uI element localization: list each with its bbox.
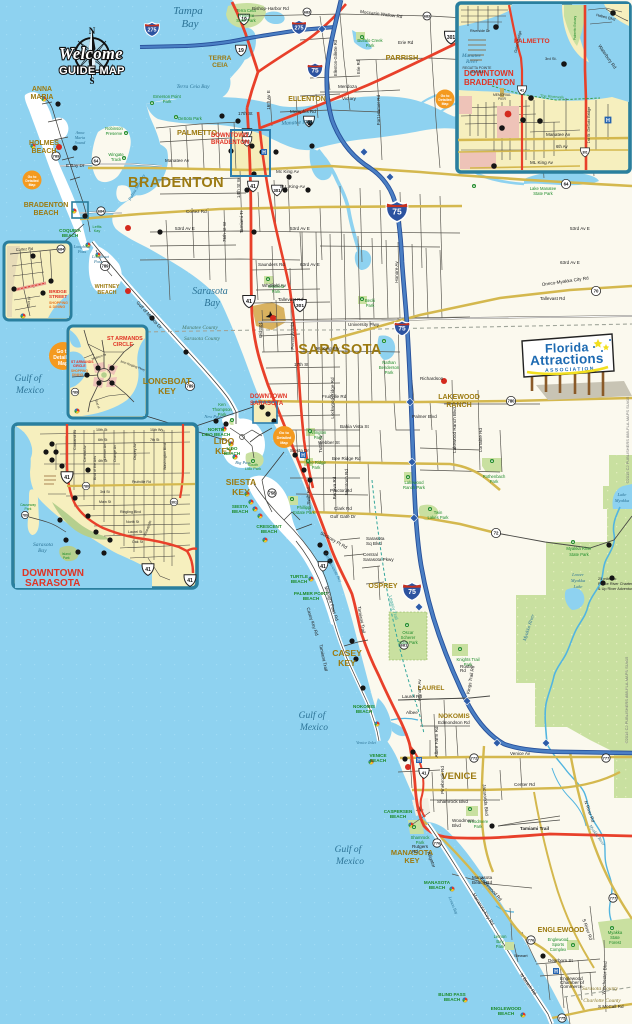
svg-text:M.L.King-Av: M.L.King-Av bbox=[280, 184, 306, 189]
svg-text:GUIDE-MAP: GUIDE-MAP bbox=[59, 65, 125, 77]
svg-text:Park: Park bbox=[496, 944, 506, 949]
svg-text:301: 301 bbox=[582, 151, 588, 155]
svg-text:75: 75 bbox=[408, 589, 416, 596]
svg-text:Osprey Av: Osprey Av bbox=[133, 443, 137, 460]
svg-text:Blvd: Blvd bbox=[452, 823, 461, 828]
svg-text:3rd St.: 3rd St. bbox=[545, 56, 557, 61]
svg-text:Manatee Av: Manatee Av bbox=[546, 132, 571, 137]
svg-text:Map: Map bbox=[280, 441, 288, 445]
svg-text:7th St: 7th St bbox=[150, 438, 159, 442]
svg-text:SARASOTA: SARASOTA bbox=[250, 401, 284, 407]
svg-text:& DINING: & DINING bbox=[49, 305, 65, 309]
svg-text:Siesta Dr: Siesta Dr bbox=[290, 448, 309, 453]
svg-text:Sq Blvd: Sq Blvd bbox=[366, 541, 382, 546]
svg-text:Erie Rd: Erie Rd bbox=[398, 40, 414, 45]
svg-text:789: 789 bbox=[72, 390, 78, 394]
svg-text:©2015 CJ PUBLISHERS 888-FLA-: ©2015 CJ PUBLISHERS 888-FLA-MAPS SU#15 bbox=[624, 656, 629, 744]
svg-text:301: 301 bbox=[171, 500, 177, 504]
svg-text:ENGLEWOOD: ENGLEWOOD bbox=[538, 927, 585, 934]
svg-text:KEY: KEY bbox=[158, 386, 176, 396]
svg-text:Go to: Go to bbox=[279, 431, 290, 435]
svg-text:Mendoza: Mendoza bbox=[338, 84, 357, 89]
svg-text:Complex: Complex bbox=[550, 947, 567, 952]
svg-text:State Park: State Park bbox=[236, 18, 256, 23]
svg-text:Shamrock Blvd: Shamrock Blvd bbox=[437, 799, 468, 804]
svg-text:BEACH: BEACH bbox=[390, 814, 407, 819]
svg-text:Tamiami Tr: Tamiami Tr bbox=[239, 210, 244, 233]
svg-text:Pass: Pass bbox=[77, 249, 87, 254]
svg-text:Ringling Blvd: Ringling Blvd bbox=[120, 510, 141, 514]
svg-text:275: 275 bbox=[295, 25, 304, 31]
svg-text:19: 19 bbox=[238, 48, 244, 54]
svg-text:10th St: 10th St bbox=[96, 428, 107, 432]
svg-text:Lorraine Rd: Lorraine Rd bbox=[478, 428, 483, 452]
svg-text:Park: Park bbox=[163, 99, 173, 104]
svg-text:63rd Av E: 63rd Av E bbox=[300, 262, 320, 267]
svg-text:H: H bbox=[554, 969, 558, 975]
svg-text:SIESTA: SIESTA bbox=[226, 477, 256, 487]
svg-text:University Plwy: University Plwy bbox=[348, 322, 380, 327]
svg-text:Albee: Albee bbox=[406, 710, 418, 715]
svg-text:ELLENTON: ELLENTON bbox=[288, 96, 326, 103]
svg-text:Rd: Rd bbox=[412, 849, 418, 854]
svg-text:LIDO: LIDO bbox=[214, 436, 235, 446]
svg-text:Cocoanut Av: Cocoanut Av bbox=[73, 429, 77, 450]
svg-text:10th Wy: 10th Wy bbox=[150, 428, 163, 432]
svg-text:Washington Blvd: Washington Blvd bbox=[163, 443, 167, 470]
svg-text:BEACH: BEACH bbox=[34, 210, 59, 217]
svg-text:SARASOTA: SARASOTA bbox=[25, 578, 80, 589]
svg-text:Swift Rd: Swift Rd bbox=[306, 487, 311, 505]
svg-text:E Bay Dr: E Bay Dr bbox=[66, 163, 85, 168]
svg-text:Detailed: Detailed bbox=[277, 436, 292, 440]
svg-text:Mc King Av: Mc King Av bbox=[276, 169, 300, 174]
svg-text:Manatee County: Manatee County bbox=[181, 325, 218, 331]
svg-text:NOKOMIS: NOKOMIS bbox=[438, 713, 470, 720]
svg-text:Venice Inlet: Venice Inlet bbox=[356, 740, 376, 745]
svg-text:Myakka: Myakka bbox=[570, 578, 586, 583]
svg-text:DINING: DINING bbox=[72, 373, 84, 377]
svg-text:70: 70 bbox=[594, 289, 599, 294]
svg-text:41: 41 bbox=[520, 89, 524, 93]
svg-text:780: 780 bbox=[83, 484, 89, 488]
svg-text:LONGBOAT: LONGBOAT bbox=[143, 376, 192, 386]
svg-text:State Park: State Park bbox=[398, 640, 418, 645]
svg-text:HOLMES: HOLMES bbox=[29, 140, 59, 147]
svg-text:Orange Av: Orange Av bbox=[113, 445, 117, 462]
svg-text:Lakes Park: Lakes Park bbox=[428, 515, 450, 520]
svg-text:Tamiami Trail: Tamiami Trail bbox=[520, 826, 549, 831]
svg-text:Sarasota County: Sarasota County bbox=[184, 336, 221, 342]
svg-text:LIDO BEACH: LIDO BEACH bbox=[202, 432, 231, 437]
svg-text:TERRA: TERRA bbox=[209, 55, 232, 62]
svg-text:LAKEWOOD: LAKEWOOD bbox=[438, 394, 480, 401]
svg-text:BEACH: BEACH bbox=[232, 509, 249, 514]
svg-text:Palmetto Estuary: Palmetto Estuary bbox=[573, 15, 577, 40]
svg-text:DOWNTOWN: DOWNTOWN bbox=[250, 394, 287, 400]
svg-text:Sound: Sound bbox=[75, 140, 86, 145]
svg-text:Park: Park bbox=[474, 824, 484, 829]
svg-text:BRADENTON: BRADENTON bbox=[211, 140, 249, 146]
svg-text:758: 758 bbox=[269, 491, 277, 496]
svg-text:ML King Av: ML King Av bbox=[530, 160, 554, 165]
svg-text:River: River bbox=[465, 59, 479, 65]
svg-text:Manatee Av: Manatee Av bbox=[165, 158, 190, 163]
svg-text:Map: Map bbox=[442, 102, 449, 106]
svg-text:BEACH: BEACH bbox=[356, 709, 373, 714]
svg-text:775: 775 bbox=[559, 1016, 566, 1021]
svg-text:Forest: Forest bbox=[609, 940, 622, 945]
svg-text:14th St W: 14th St W bbox=[236, 177, 241, 198]
svg-text:275: 275 bbox=[148, 27, 157, 33]
svg-text:Mexico: Mexico bbox=[15, 386, 44, 396]
svg-text:Stewart: Stewart bbox=[514, 953, 528, 958]
svg-text:Pass: Pass bbox=[93, 259, 103, 264]
svg-text:41: 41 bbox=[64, 475, 70, 481]
svg-text:Sarasota Pkwy: Sarasota Pkwy bbox=[363, 557, 394, 562]
svg-text:N: N bbox=[89, 26, 96, 36]
svg-text:41: 41 bbox=[187, 578, 193, 584]
svg-text:BEACH: BEACH bbox=[32, 148, 57, 155]
svg-text:Palmer Blvd: Palmer Blvd bbox=[412, 414, 437, 419]
svg-text:M. King Wy: M. King Wy bbox=[316, 346, 340, 351]
svg-text:McIntosh Rd: McIntosh Rd bbox=[344, 469, 349, 495]
svg-text:H: H bbox=[606, 118, 610, 124]
svg-text:©2015 CJ PUBLISHERS 888-FLA-: ©2015 CJ PUBLISHERS 888-FLA-MAPS SU#15 bbox=[625, 396, 630, 484]
svg-text:Myakka River: Myakka River bbox=[566, 546, 592, 551]
svg-text:Estate Park: Estate Park bbox=[293, 510, 316, 515]
svg-text:MARINA: MARINA bbox=[470, 70, 484, 74]
svg-text:Terra Ceia Bay: Terra Ceia Bay bbox=[176, 84, 210, 90]
svg-text:75: 75 bbox=[392, 206, 402, 216]
svg-text:H: H bbox=[417, 758, 421, 764]
svg-text:64: 64 bbox=[94, 159, 99, 164]
svg-text:Bishop-Harbor Rd: Bishop-Harbor Rd bbox=[252, 6, 289, 11]
svg-text:16th Av E: 16th Av E bbox=[266, 90, 271, 110]
svg-text:Park: Park bbox=[490, 479, 500, 484]
svg-text:CIRCLE: CIRCLE bbox=[113, 342, 133, 348]
svg-text:Fort Hamer Rd: Fort Hamer Rd bbox=[376, 94, 381, 125]
svg-text:Main St: Main St bbox=[99, 500, 111, 504]
svg-text:Ellenton-Gillette Rd: Ellenton-Gillette Rd bbox=[333, 39, 338, 76]
svg-text:OSPREY: OSPREY bbox=[368, 583, 398, 590]
svg-text:Victory: Victory bbox=[342, 96, 357, 101]
svg-text:Tallevast Rd: Tallevast Rd bbox=[278, 297, 303, 302]
svg-text:Park: Park bbox=[63, 556, 70, 560]
svg-text:Preserve: Preserve bbox=[106, 131, 123, 136]
svg-text:Pinebrook Rd: Pinebrook Rd bbox=[440, 766, 445, 794]
svg-text:MARIA: MARIA bbox=[31, 94, 54, 101]
svg-text:BEACH: BEACH bbox=[62, 233, 79, 238]
svg-text:CEIA: CEIA bbox=[212, 62, 228, 69]
svg-text:BRADENTON: BRADENTON bbox=[24, 202, 69, 209]
svg-text:17th St: 17th St bbox=[238, 111, 253, 116]
svg-text:Park: Park bbox=[366, 303, 376, 308]
svg-text:KEY: KEY bbox=[338, 658, 356, 668]
svg-text:Bay: Bay bbox=[38, 548, 47, 554]
svg-text:Albee Farm Rd: Albee Farm Rd bbox=[434, 726, 439, 757]
svg-text:Honore Av: Honore Av bbox=[417, 679, 422, 701]
svg-text:Riverside Dr: Riverside Dr bbox=[470, 29, 491, 33]
svg-text:Blvd of the Arts: Blvd of the Arts bbox=[93, 456, 97, 480]
svg-text:53rd Av E: 53rd Av E bbox=[175, 226, 195, 231]
svg-text:H: H bbox=[262, 150, 266, 156]
svg-text:684: 684 bbox=[98, 210, 105, 214]
svg-text:STREET: STREET bbox=[49, 294, 67, 299]
svg-text:41: 41 bbox=[320, 564, 326, 570]
svg-text:Clark Rd: Clark Rd bbox=[334, 506, 352, 511]
svg-text:Welcome: Welcome bbox=[59, 44, 123, 63]
svg-text:41: 41 bbox=[422, 771, 427, 776]
svg-text:State Park: State Park bbox=[569, 552, 589, 557]
svg-text:Tuttle Av: Tuttle Av bbox=[318, 434, 323, 452]
svg-text:Mexico: Mexico bbox=[335, 857, 364, 867]
svg-text:BEACH: BEACH bbox=[291, 579, 308, 584]
svg-text:S McCall Rd: S McCall Rd bbox=[598, 1004, 624, 1009]
svg-text:41: 41 bbox=[145, 567, 151, 573]
svg-text:Gulf of: Gulf of bbox=[299, 710, 327, 721]
svg-text:Lemon Av: Lemon Av bbox=[103, 444, 107, 460]
svg-text:Gulf of: Gulf of bbox=[15, 373, 43, 384]
svg-text:Cortez Rd: Cortez Rd bbox=[186, 209, 207, 214]
svg-text:41: 41 bbox=[246, 299, 252, 305]
svg-text:Ranch Park: Ranch Park bbox=[403, 485, 426, 490]
svg-text:BEACH: BEACH bbox=[261, 529, 278, 534]
svg-text:Map: Map bbox=[29, 183, 36, 187]
svg-text:6th St: 6th St bbox=[98, 438, 107, 442]
svg-text:BEACH: BEACH bbox=[303, 596, 320, 601]
svg-text:Lower: Lower bbox=[571, 572, 584, 577]
svg-text:Beneva Rd: Beneva Rd bbox=[332, 476, 337, 499]
svg-text:Sarasota County: Sarasota County bbox=[582, 986, 619, 992]
svg-text:Erie Rd: Erie Rd bbox=[356, 59, 361, 74]
svg-text:State Park: State Park bbox=[533, 191, 553, 196]
svg-text:BEACH: BEACH bbox=[429, 885, 446, 890]
svg-text:Honore Av: Honore Av bbox=[394, 261, 399, 283]
svg-text:Commerce: Commerce bbox=[560, 984, 583, 989]
svg-text:Peace River Charters: Peace River Charters bbox=[598, 582, 632, 586]
svg-text:75th St W: 75th St W bbox=[222, 221, 227, 242]
svg-text:KEY: KEY bbox=[404, 856, 419, 865]
svg-text:Bee Ridge Rd: Bee Ridge Rd bbox=[332, 456, 361, 461]
svg-text:& Up River Adventures: & Up River Adventures bbox=[598, 587, 632, 591]
svg-text:Park: Park bbox=[312, 465, 322, 470]
svg-text:Sarasota: Sarasota bbox=[192, 286, 228, 297]
svg-text:BRADENTON: BRADENTON bbox=[128, 175, 224, 191]
svg-text:PARRISH: PARRISH bbox=[386, 53, 419, 62]
svg-text:BEACH: BEACH bbox=[444, 997, 461, 1002]
svg-text:Edmondson Rd: Edmondson Rd bbox=[438, 720, 470, 725]
svg-text:64: 64 bbox=[564, 182, 569, 187]
svg-text:Saunders Rd: Saunders Rd bbox=[258, 262, 285, 267]
svg-text:PIER: PIER bbox=[498, 97, 506, 101]
svg-text:Memphis Rd: Memphis Rd bbox=[290, 109, 316, 114]
svg-text:Park: Park bbox=[385, 370, 395, 375]
svg-text:Lake: Lake bbox=[617, 492, 627, 497]
svg-text:780: 780 bbox=[508, 399, 516, 404]
svg-text:CIRCLE: CIRCLE bbox=[73, 364, 86, 368]
svg-text:41: 41 bbox=[250, 184, 256, 190]
svg-text:Whitfield Av: Whitfield Av bbox=[262, 283, 287, 288]
svg-text:301: 301 bbox=[296, 303, 304, 309]
svg-text:Park: Park bbox=[272, 289, 282, 294]
svg-text:72: 72 bbox=[494, 531, 499, 536]
svg-text:Rd: Rd bbox=[460, 668, 466, 673]
svg-text:Lakewood Ranch Blvd: Lakewood Ranch Blvd bbox=[452, 407, 457, 453]
svg-text:Gulf Gate Dr: Gulf Gate Dr bbox=[330, 514, 356, 519]
svg-text:BEACH: BEACH bbox=[97, 290, 116, 296]
svg-text:683: 683 bbox=[304, 11, 310, 15]
svg-text:S: S bbox=[89, 76, 94, 86]
svg-text:Lockwood Ridge Rd: Lockwood Ridge Rd bbox=[330, 377, 335, 419]
svg-text:ANNA: ANNA bbox=[32, 86, 52, 93]
svg-text:777: 777 bbox=[603, 756, 610, 761]
svg-text:Fruitville Rd: Fruitville Rd bbox=[132, 480, 151, 484]
svg-text:VENICE: VENICE bbox=[441, 771, 476, 782]
svg-text:CASEY: CASEY bbox=[332, 648, 362, 658]
svg-text:DOWNTOWN: DOWNTOWN bbox=[211, 133, 248, 139]
svg-text:Richardson: Richardson bbox=[420, 376, 444, 381]
svg-text:BRADENTON: BRADENTON bbox=[464, 78, 515, 87]
svg-text:Pennsylvania: Pennsylvania bbox=[290, 322, 295, 350]
svg-text:Myakka: Myakka bbox=[614, 498, 630, 503]
svg-text:Bahia Vista St: Bahia Vista St bbox=[340, 424, 369, 429]
svg-text:BEACH: BEACH bbox=[498, 1011, 515, 1016]
svg-text:Park: Park bbox=[366, 43, 376, 48]
svg-text:Bay: Bay bbox=[181, 18, 198, 30]
svg-text:Kay: Kay bbox=[94, 229, 101, 233]
svg-text:Old 301: Old 301 bbox=[258, 322, 263, 339]
svg-text:772: 772 bbox=[471, 756, 478, 761]
svg-text:Gulf of: Gulf of bbox=[335, 844, 363, 855]
svg-text:53rd Av E: 53rd Av E bbox=[570, 226, 590, 231]
svg-text:776: 776 bbox=[528, 938, 535, 943]
svg-text:BEACH: BEACH bbox=[224, 451, 241, 456]
svg-text:Lido Park: Lido Park bbox=[245, 467, 261, 471]
svg-text:BEACH: BEACH bbox=[370, 758, 387, 763]
svg-text:H: H bbox=[301, 453, 305, 459]
svg-text:17th St: 17th St bbox=[294, 362, 309, 367]
svg-text:Oak St: Oak St bbox=[132, 540, 143, 544]
svg-text:683: 683 bbox=[424, 15, 430, 19]
svg-text:Center Rd: Center Rd bbox=[514, 782, 535, 787]
svg-text:6th Av: 6th Av bbox=[556, 144, 568, 149]
svg-text:North St: North St bbox=[126, 520, 139, 524]
svg-text:Central Av: Central Av bbox=[83, 445, 87, 462]
svg-text:Track: Track bbox=[111, 157, 122, 162]
svg-text:776: 776 bbox=[434, 841, 441, 846]
svg-text:75: 75 bbox=[311, 68, 319, 75]
svg-text:Tallevast Rd: Tallevast Rd bbox=[540, 296, 565, 301]
svg-text:Dearborn St: Dearborn St bbox=[548, 958, 573, 963]
svg-text:777: 777 bbox=[610, 896, 617, 901]
svg-text:DeSoto Park: DeSoto Park bbox=[178, 116, 203, 121]
svg-text:SARASOTA: SARASOTA bbox=[298, 342, 382, 358]
svg-text:1st St. DeSoto Bridge: 1st St. DeSoto Bridge bbox=[587, 107, 591, 144]
svg-text:684: 684 bbox=[58, 248, 65, 252]
svg-text:Laurel St: Laurel St bbox=[128, 530, 142, 534]
svg-text:RANCH: RANCH bbox=[446, 402, 471, 409]
svg-text:Lake: Lake bbox=[573, 584, 583, 589]
svg-text:789: 789 bbox=[102, 264, 110, 269]
svg-text:63rd Av E: 63rd Av E bbox=[560, 260, 580, 265]
svg-text:301: 301 bbox=[447, 35, 456, 41]
svg-text:Bay: Bay bbox=[204, 298, 220, 309]
svg-text:75: 75 bbox=[398, 326, 406, 333]
svg-text:Tampa: Tampa bbox=[173, 5, 203, 17]
svg-text:789: 789 bbox=[22, 513, 28, 517]
svg-text:Park: Park bbox=[25, 507, 32, 511]
svg-text:Mexico: Mexico bbox=[299, 723, 328, 733]
svg-text:KEY: KEY bbox=[232, 487, 250, 497]
svg-text:Venice Av: Venice Av bbox=[510, 751, 531, 756]
svg-text:Park: Park bbox=[218, 412, 228, 417]
svg-text:3rd St: 3rd St bbox=[100, 490, 110, 494]
svg-text:53rd Av E: 53rd Av E bbox=[290, 226, 310, 231]
